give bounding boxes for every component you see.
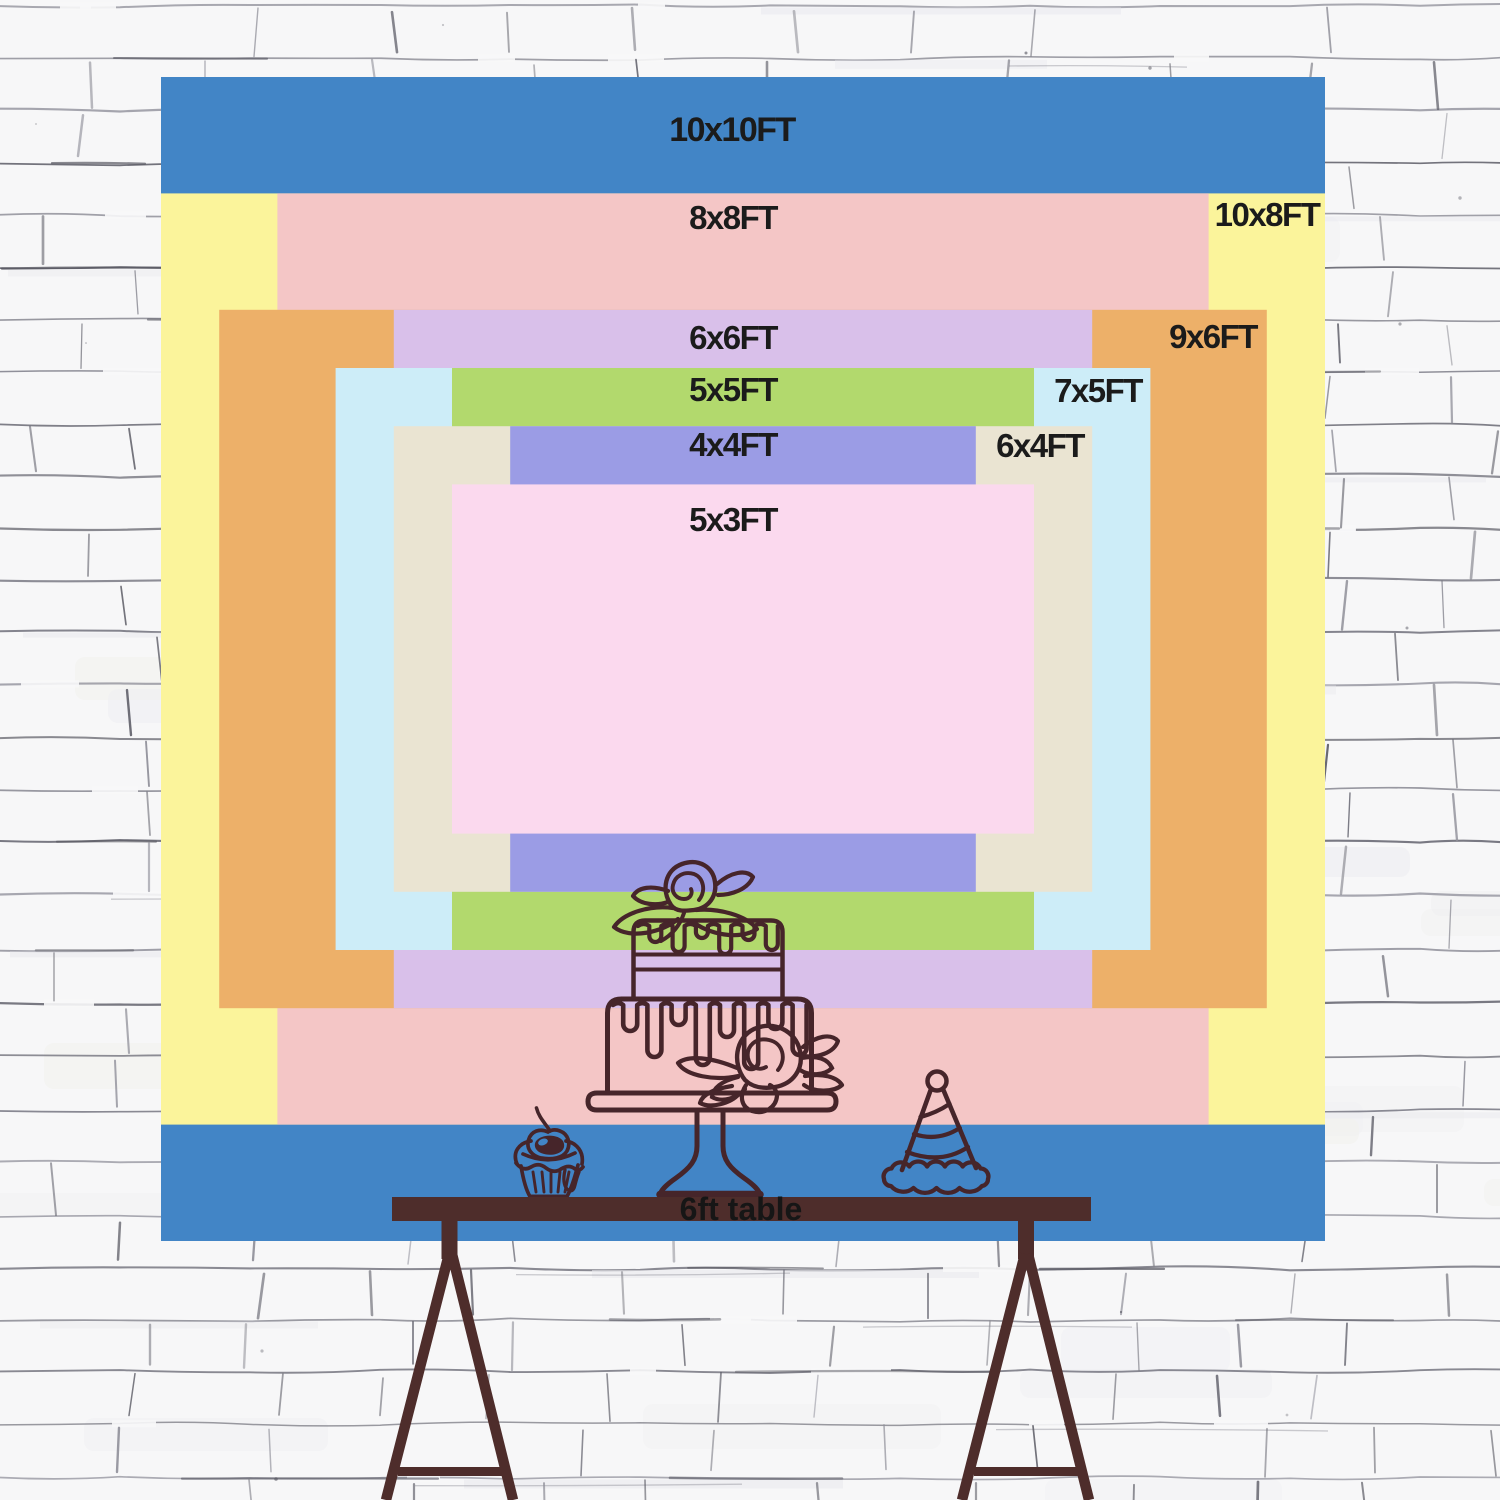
svg-text:5x3FT: 5x3FT bbox=[689, 501, 778, 538]
svg-text:6x4FT: 6x4FT bbox=[996, 427, 1085, 464]
svg-text:10x10FT: 10x10FT bbox=[669, 111, 796, 149]
svg-text:6ft table: 6ft table bbox=[680, 1191, 803, 1227]
svg-text:9x6FT: 9x6FT bbox=[1169, 318, 1258, 355]
svg-text:7x5FT: 7x5FT bbox=[1054, 372, 1143, 409]
svg-text:5x5FT: 5x5FT bbox=[689, 371, 778, 408]
svg-text:8x8FT: 8x8FT bbox=[689, 199, 778, 236]
svg-text:10x8FT: 10x8FT bbox=[1215, 196, 1321, 233]
svg-text:6x6FT: 6x6FT bbox=[689, 319, 778, 356]
svg-text:4x4FT: 4x4FT bbox=[689, 426, 778, 463]
